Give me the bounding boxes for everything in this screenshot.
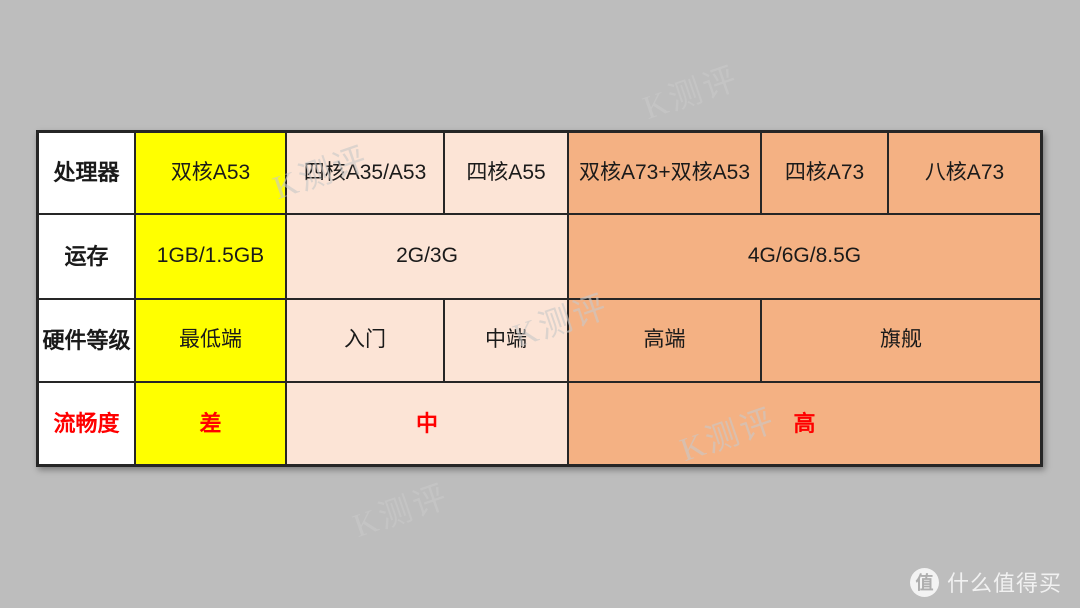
cell-grade-entry: 入门 (287, 300, 443, 381)
cell-cpu-octa-a73: 八核A73 (889, 133, 1040, 213)
cell-cpu-dual-a53: 双核A53 (136, 133, 285, 213)
cell-ram-low: 1GB/1.5GB (136, 215, 285, 298)
cpu-tier-table: 处理器 双核A53 四核A35/A53 四核A55 双核A73+双核A53 四核… (36, 130, 1043, 467)
smzdm-badge-icon: 值 (910, 568, 939, 597)
cell-fluency-high: 高 (569, 383, 1040, 464)
cell-processor-label: 处理器 (39, 133, 134, 213)
cell-cpu-dual-a73-dual-a53: 双核A73+双核A53 (569, 133, 760, 213)
cell-grade-high: 高端 (569, 300, 760, 381)
cell-cpu-quad-a73: 四核A73 (762, 133, 887, 213)
cell-ram-high: 4G/6G/8.5G (569, 215, 1040, 298)
cell-cpu-quad-a35-a53: 四核A35/A53 (287, 133, 443, 213)
watermark-k-review: K测评 (345, 469, 454, 547)
cell-fluency-medium: 中 (287, 383, 567, 464)
cell-grade-lowest: 最低端 (136, 300, 285, 381)
smzdm-logo-text: 什么值得买 (947, 566, 1062, 598)
cell-grade-mid: 中端 (445, 300, 567, 381)
infographic-canvas: K测评 K测评 K测评 K测评 K测评 处理器 双核A53 四核A35/A53 … (0, 0, 1080, 608)
smzdm-logo: 值 什么值得买 (910, 566, 1062, 598)
cell-ram-label: 运存 (39, 215, 134, 298)
cell-fluency-poor: 差 (136, 383, 285, 464)
cell-fluency-label: 流畅度 (39, 383, 134, 464)
cell-grade-flagship: 旗舰 (762, 300, 1040, 381)
cell-cpu-quad-a55: 四核A55 (445, 133, 567, 213)
watermark-k-review: K测评 (635, 51, 744, 129)
cell-ram-mid: 2G/3G (287, 215, 567, 298)
cell-grade-label: 硬件等级 (39, 300, 134, 381)
